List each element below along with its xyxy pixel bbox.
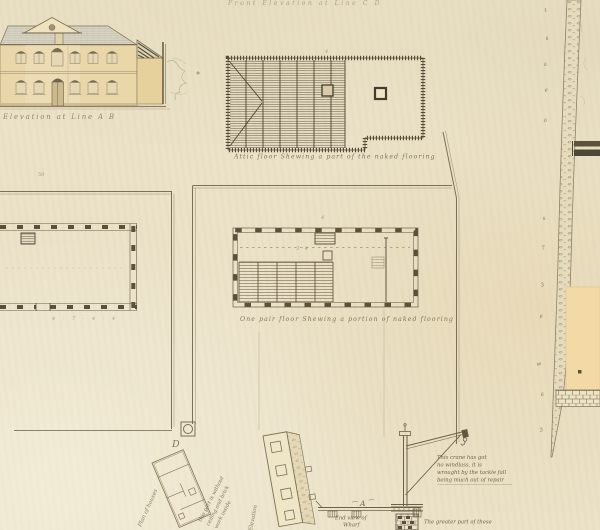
margin-mark: s — [542, 215, 546, 222]
joist-field — [239, 262, 333, 302]
pulley-block — [462, 430, 468, 438]
one-pair-caption: One pair floor Shewing a portion of nake… — [240, 316, 454, 323]
building-elevation: Elevation at Line A B — [0, 18, 200, 122]
crane-note-line: no windlass, it is — [437, 463, 482, 469]
stair-opening — [315, 233, 335, 244]
sheave — [463, 438, 467, 442]
crane-note-line: being much out of repair — [437, 478, 504, 484]
trimmed-opening — [322, 85, 333, 96]
river-wall-band — [551, 0, 600, 457]
margin-mark: o — [543, 117, 548, 124]
yard-boundaries — [0, 131, 459, 444]
margin-mark: s — [545, 35, 549, 42]
margin-marks: t s a e o s 7 3 e w a 3 — [536, 7, 549, 434]
crane-cap — [400, 432, 411, 436]
crane-finial-pulley — [404, 424, 406, 426]
loading-door — [305, 466, 312, 472]
end-view-caption-2: Wharf — [343, 523, 361, 529]
margin-mark: a — [543, 61, 548, 68]
crane-jib — [406, 432, 464, 447]
centre-window — [52, 52, 64, 66]
warehouse-block-wash — [566, 287, 600, 390]
drawing-canvas: Elevation at Line A B Front Elevation at… — [0, 0, 600, 530]
plan-partitions — [158, 464, 204, 513]
tilted-plan-label: Plan of houses — [137, 488, 159, 528]
plan-stair — [178, 513, 185, 520]
small-opening — [372, 257, 384, 268]
brick-wall-texture — [556, 390, 600, 407]
crane-note-line: This crane has got — [437, 455, 487, 461]
dim-mark: 4 — [320, 215, 324, 221]
jetty-bar-upper — [574, 141, 600, 147]
top-caption-fragment: Front Elevation at Line C D — [227, 0, 382, 7]
trap-door — [323, 251, 332, 260]
crane-note-line: wrought by the tackle fall — [437, 470, 506, 476]
attic-floor-plan: Attic floor Shewing a part of the naked … — [228, 58, 436, 161]
scanned-drawing-sheet: Elevation at Line A B Front Elevation at… — [0, 0, 600, 530]
corner-post-circle — [184, 425, 193, 434]
dim-mark: 3 4 — [296, 246, 310, 252]
corner-letter-d: D — [171, 439, 180, 450]
greater-part-note: The greater part of these — [424, 520, 492, 526]
elevation-caption: Elevation at Line A B — [2, 113, 116, 121]
yard-b-right-slant — [443, 132, 457, 444]
tilted-note: this part is without ceiling and brick w… — [197, 475, 232, 530]
margin-mark: e — [544, 87, 549, 94]
crane-note: This crane has got no windlass, it is wr… — [437, 455, 512, 485]
wharf-letter-a: A — [359, 499, 366, 508]
hook — [461, 442, 465, 446]
joist-field — [230, 60, 345, 148]
dim-mark: 4 — [324, 49, 328, 55]
hatchway — [375, 88, 386, 99]
tilted-elevation-label: Elevation — [248, 504, 259, 530]
wharf-end-tick — [316, 501, 322, 508]
tilted-elevation-sketch — [263, 429, 321, 530]
wharf-pile — [413, 509, 421, 517]
door-jambs — [36, 303, 50, 311]
pencil-scribble-2 — [170, 58, 186, 94]
margin-mark: e — [539, 313, 544, 320]
attic-plan-caption: Attic floor Shewing a part of the naked … — [233, 154, 436, 161]
jetty-bar-lower — [574, 150, 600, 157]
margin-mark: t — [544, 7, 548, 14]
ink-blot — [197, 72, 200, 75]
ground-floor-plan — [0, 224, 137, 312]
plan-closet — [188, 488, 196, 496]
pediment-emblem — [49, 25, 55, 31]
one-pair-floor-plan: One pair floor Shewing a portion of nake… — [233, 228, 454, 323]
margin-mark: a — [540, 391, 545, 398]
margin-mark: 7 — [541, 245, 546, 252]
margin-mark: 3 — [540, 282, 545, 289]
dim-mark: 4 · 7 · 4 · 4 — [51, 316, 118, 322]
margin-mark: w — [536, 361, 542, 368]
stair-block — [21, 233, 35, 244]
annex-wall — [137, 58, 163, 104]
margin-mark: 3 — [539, 427, 544, 434]
small-mark — [578, 370, 582, 374]
dim-mark: 50 — [38, 172, 45, 178]
end-view-caption-1: End view of — [334, 516, 368, 522]
